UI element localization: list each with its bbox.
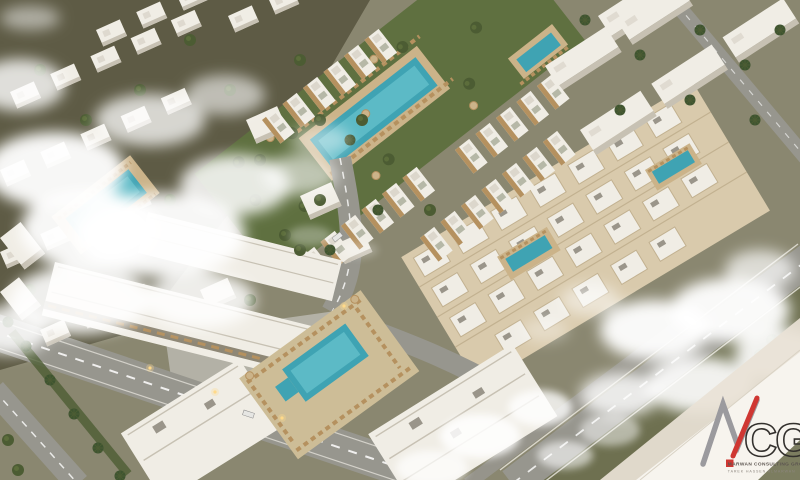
logo-line2: TAREK HASSEN ALMARWAN: [728, 470, 796, 474]
logo-line1: MARWAN CONSULTING GROUP: [728, 461, 800, 467]
aerial-render-canvas: CG MARWAN CONSULTING GROUP TAREK HASSEN …: [0, 0, 800, 480]
aerial-site-render: CG MARWAN CONSULTING GROUP TAREK HASSEN …: [0, 0, 800, 480]
logo-monogram-cg: CG: [744, 414, 800, 466]
